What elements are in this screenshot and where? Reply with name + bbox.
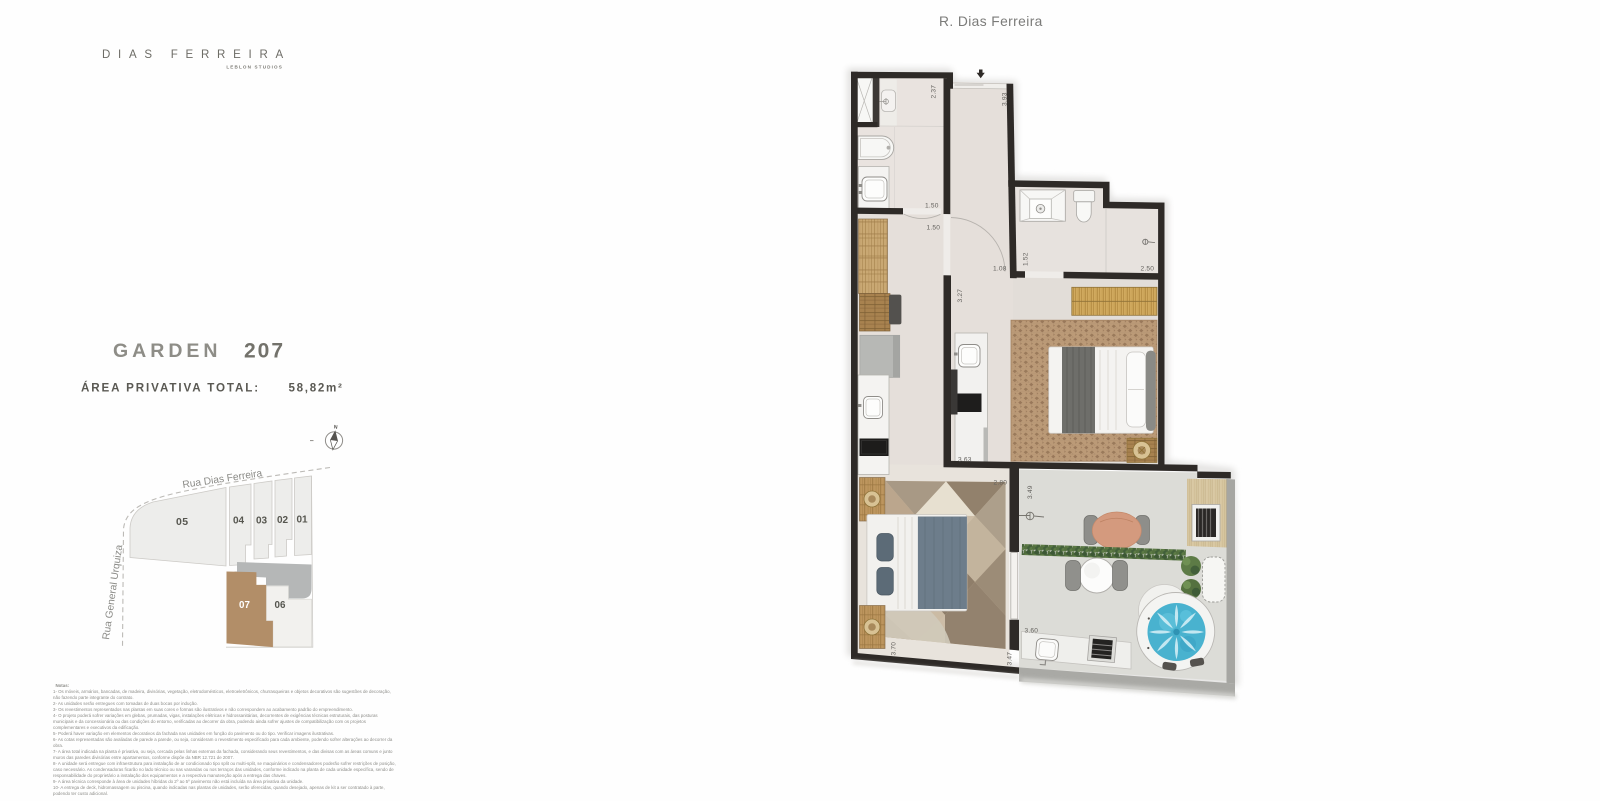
- svg-text:1.50: 1.50: [925, 203, 939, 210]
- svg-text:3.70: 3.70: [891, 642, 898, 656]
- svg-text:02: 02: [277, 515, 289, 526]
- svg-text:LEBLON STUDIOS: LEBLON STUDIOS: [226, 65, 283, 70]
- svg-text:DIAS FERREIRA: DIAS FERREIRA: [102, 49, 291, 61]
- svg-text:ÁREA PRIVATIVA TOTAL:: ÁREA PRIVATIVA TOTAL:: [81, 382, 260, 395]
- svg-text:1.08: 1.08: [993, 266, 1007, 273]
- svg-text:1.50: 1.50: [927, 225, 941, 232]
- svg-text:06: 06: [275, 600, 286, 611]
- svg-text:3.63: 3.63: [958, 457, 972, 464]
- svg-text:58,82m²: 58,82m²: [289, 382, 344, 395]
- svg-text:GARDEN: GARDEN: [113, 340, 222, 362]
- svg-text:3.60: 3.60: [1025, 628, 1039, 635]
- svg-text:05: 05: [176, 516, 188, 528]
- svg-text:04: 04: [233, 516, 245, 527]
- svg-text:3.49: 3.49: [1027, 485, 1034, 499]
- svg-text:R. Dias Ferreira: R. Dias Ferreira: [939, 14, 1043, 29]
- svg-text:3.93: 3.93: [1002, 92, 1009, 106]
- svg-text:3.47: 3.47: [1007, 652, 1014, 666]
- svg-text:2.50: 2.50: [1141, 266, 1155, 273]
- svg-text:2.37: 2.37: [931, 85, 938, 99]
- svg-text:07: 07: [239, 600, 250, 611]
- svg-text:1.52: 1.52: [1023, 252, 1030, 266]
- svg-text:01: 01: [297, 515, 309, 526]
- svg-text:207: 207: [244, 340, 285, 363]
- svg-text:2.80: 2.80: [994, 480, 1008, 487]
- svg-text:03: 03: [256, 516, 268, 527]
- svg-text:3.27: 3.27: [957, 289, 964, 303]
